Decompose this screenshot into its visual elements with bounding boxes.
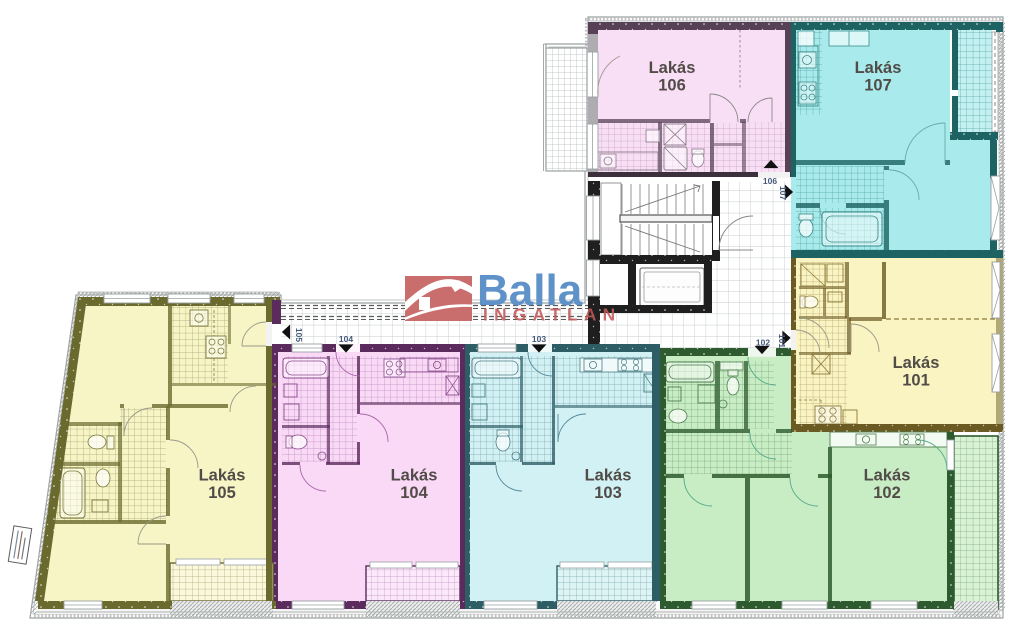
- svg-text:101: 101: [902, 372, 930, 390]
- svg-text:INGATLAN: INGATLAN: [483, 305, 621, 325]
- svg-text:Lakás: Lakás: [864, 467, 911, 485]
- svg-text:107: 107: [864, 77, 892, 95]
- svg-text:Lakás: Lakás: [855, 59, 902, 77]
- svg-text:101: 101: [777, 334, 787, 348]
- svg-text:102: 102: [873, 484, 901, 502]
- svg-text:Lakás: Lakás: [199, 467, 246, 485]
- svg-text:Lakás: Lakás: [649, 59, 696, 77]
- svg-text:104: 104: [400, 484, 428, 502]
- svg-text:Lakás: Lakás: [893, 354, 940, 372]
- svg-text:105: 105: [294, 328, 304, 342]
- svg-text:105: 105: [208, 484, 236, 502]
- svg-text:107: 107: [778, 186, 788, 200]
- svg-text:Lakás: Lakás: [585, 467, 632, 485]
- svg-text:103: 103: [532, 334, 546, 344]
- svg-text:103: 103: [594, 484, 622, 502]
- svg-text:Lakás: Lakás: [391, 467, 438, 485]
- svg-text:106: 106: [763, 176, 777, 186]
- svg-text:106: 106: [658, 77, 686, 95]
- svg-text:104: 104: [339, 334, 353, 344]
